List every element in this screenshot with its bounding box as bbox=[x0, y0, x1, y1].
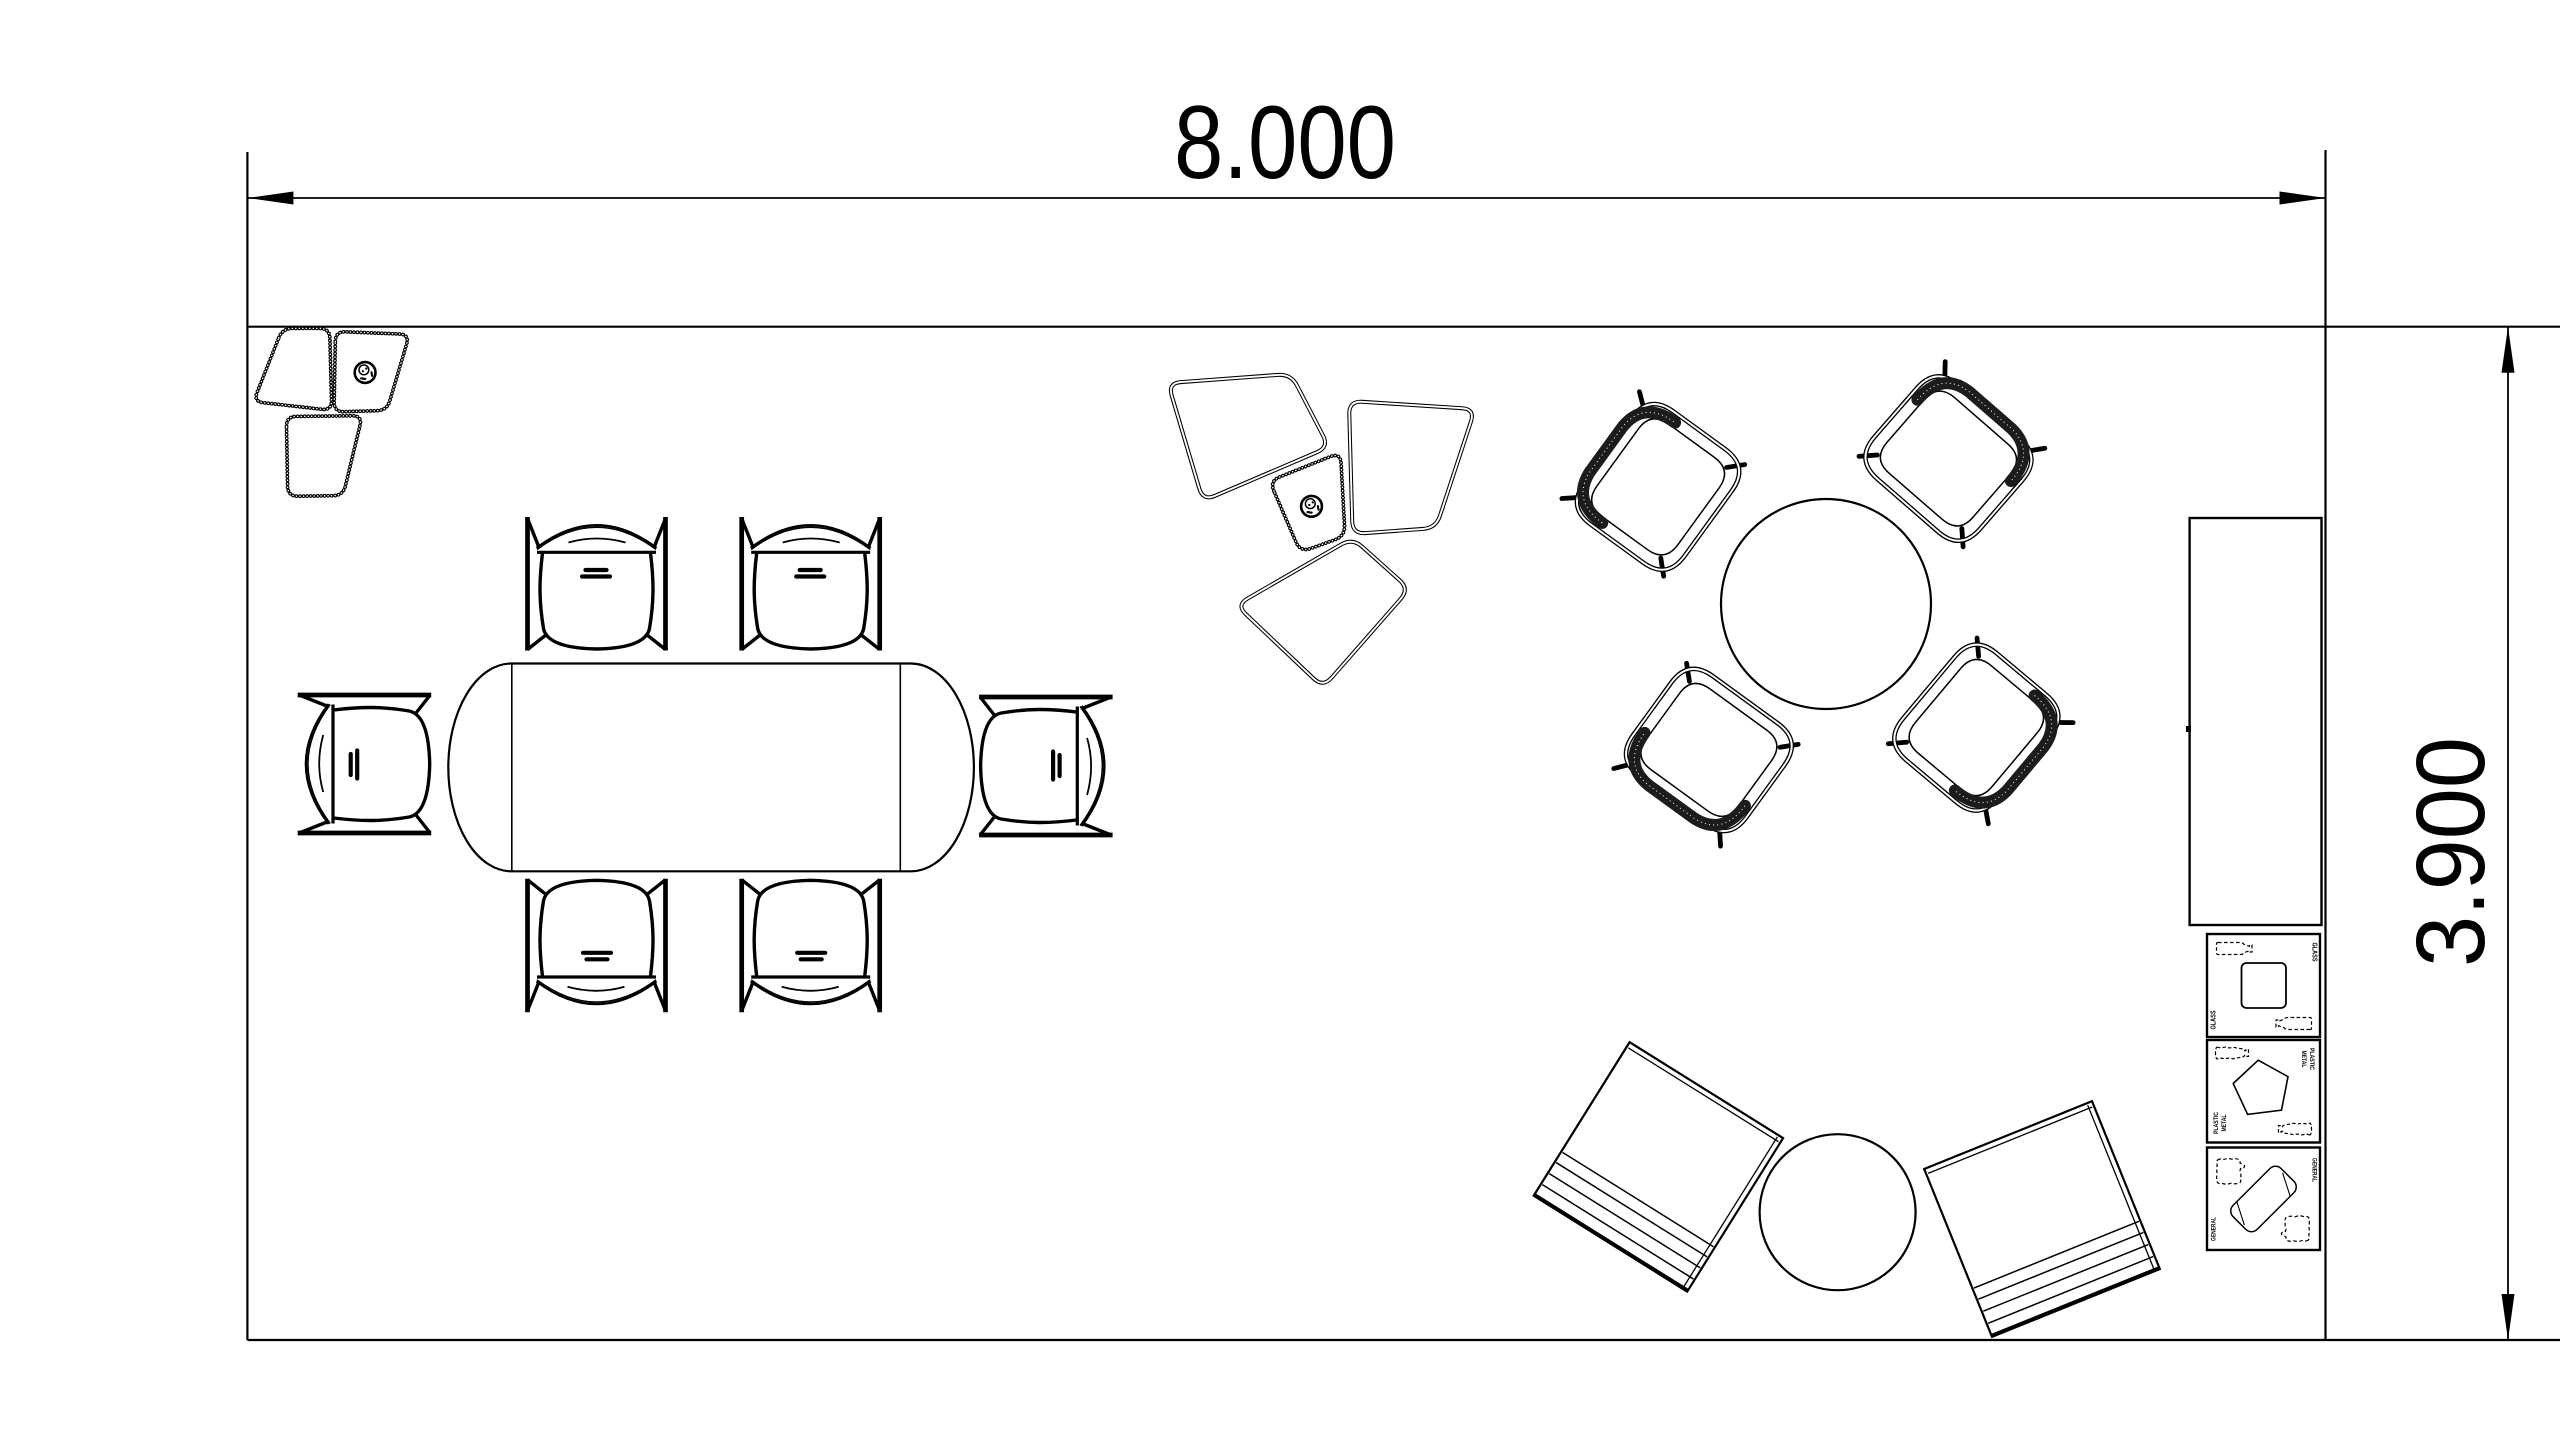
svg-text:GENERAL: GENERAL bbox=[2311, 1158, 2318, 1182]
svg-text:3.900: 3.900 bbox=[2396, 737, 2505, 967]
svg-text:GLASS: GLASS bbox=[2311, 943, 2320, 962]
svg-text:METAL: METAL bbox=[2221, 1114, 2228, 1131]
svg-text:METAL: METAL bbox=[2300, 1051, 2307, 1068]
svg-text:GENERAL: GENERAL bbox=[2211, 1217, 2218, 1241]
svg-text:8.000: 8.000 bbox=[1174, 85, 1396, 201]
svg-text:GLASS: GLASS bbox=[2209, 1010, 2218, 1029]
svg-text:PLASTIC: PLASTIC bbox=[2308, 1048, 2315, 1070]
svg-text:PLASTIC: PLASTIC bbox=[2213, 1112, 2220, 1134]
